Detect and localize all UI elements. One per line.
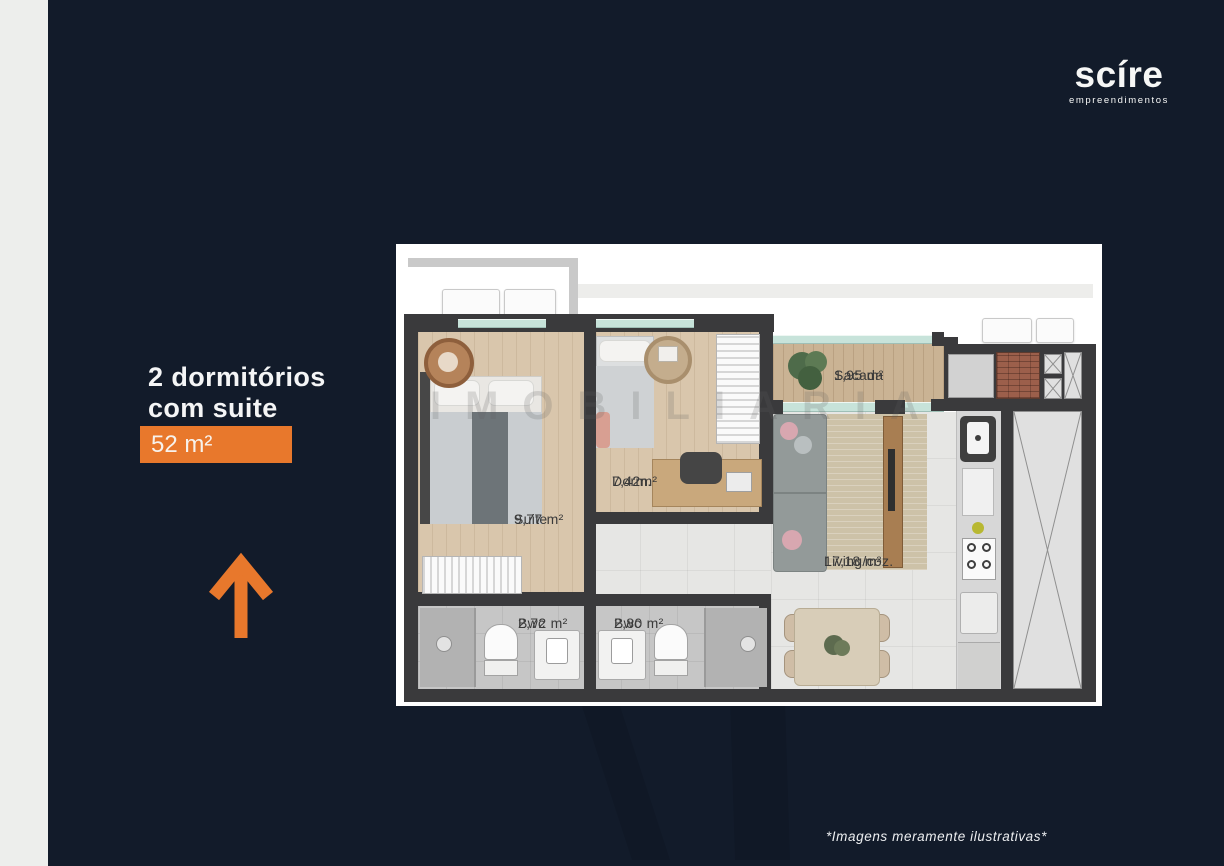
burner	[982, 560, 991, 569]
floor-plan: IMOBILIARIA Suite 9,77 m² Dorm. 7,42m² B…	[396, 244, 1102, 706]
railing-post	[932, 332, 944, 346]
living-floor-extension	[593, 524, 771, 594]
ac-condenser	[982, 318, 1032, 343]
shaft-hatch	[1044, 354, 1062, 374]
ac-condenser	[1036, 318, 1074, 343]
sacada-area: 1,95 m²	[834, 366, 884, 384]
bwc1-showerhead	[436, 636, 452, 652]
suite-window	[458, 319, 546, 328]
suite-wardrobe	[422, 556, 522, 594]
suite-area: 9,77 m²	[514, 510, 564, 528]
kitchen-flowers	[972, 522, 984, 534]
wall-dorm-bottom	[593, 512, 773, 524]
dorm-rug-decor	[658, 346, 678, 362]
wall-bwc2-top	[593, 594, 771, 606]
dorm-area: 7,42m²	[612, 472, 657, 490]
brand-logo: scíre empreendimentos	[1054, 56, 1184, 106]
living-area: 17,18 m²	[824, 552, 882, 570]
bwc1-area: 2,72 m²	[518, 614, 568, 632]
area-badge: 52 m²	[140, 426, 292, 463]
wall-suite-dorm	[584, 332, 596, 594]
headline: 2 dormitórios com suite	[148, 362, 326, 424]
wall-bottom	[404, 689, 1096, 702]
wall-kitchen-hall	[1001, 411, 1013, 689]
dorm-chair	[680, 452, 722, 484]
wall-bwc-mid	[584, 594, 596, 689]
table-centerpiece-plant	[820, 630, 854, 664]
sink-drain	[975, 435, 981, 441]
tv	[888, 449, 895, 511]
suite-tray-inner	[438, 352, 458, 372]
bwc1-basin	[546, 638, 568, 664]
brand-name: scíre	[1054, 56, 1184, 94]
headline-line2: com suite	[148, 393, 326, 424]
burner	[967, 560, 976, 569]
bwc2-area: 2,80 m²	[614, 614, 664, 632]
kitchen-prep-boxes	[962, 468, 994, 516]
page: scíre empreendimentos 2 dormitórios com …	[0, 0, 1224, 866]
bwc2-showerhead	[740, 636, 756, 652]
plan-watermark: IMOBILIARIA	[430, 384, 1090, 429]
sofa-pillow-pink	[782, 530, 802, 550]
left-accent-strip	[0, 0, 48, 866]
sofa-seam	[773, 492, 827, 494]
parapet-line-side	[569, 258, 578, 322]
kitchen-lower-counter	[958, 642, 1000, 689]
exterior-shadow-band	[578, 284, 1093, 298]
sofa-pillow-gray	[794, 436, 812, 454]
wall-left	[404, 314, 418, 702]
dorm-desk-item	[726, 472, 752, 492]
headline-line1: 2 dormitórios	[148, 362, 326, 393]
disclaimer-text: *Imagens meramente ilustrativas*	[826, 829, 1047, 844]
bwc1-toilet-tank	[484, 660, 518, 676]
up-arrow-icon	[206, 550, 276, 642]
suite-bed-headboard	[420, 372, 430, 524]
bwc2-basin	[611, 638, 633, 664]
kitchen-entry-door-panel	[960, 592, 998, 634]
background-watermark	[540, 700, 810, 860]
bwc1-toilet	[484, 624, 518, 660]
sacada-railing-glass	[773, 335, 944, 344]
parapet-line-top	[408, 258, 578, 267]
burner	[982, 543, 991, 552]
dorm-window	[596, 319, 694, 328]
bwc2-shower	[704, 608, 767, 687]
living-rug	[827, 414, 927, 570]
wall-suite-bwc1	[404, 592, 596, 606]
common-hall-hatch	[1013, 411, 1082, 689]
bwc2-toilet-tank	[654, 660, 688, 676]
brand-tagline: empreendimentos	[1054, 95, 1184, 106]
burner	[967, 543, 976, 552]
